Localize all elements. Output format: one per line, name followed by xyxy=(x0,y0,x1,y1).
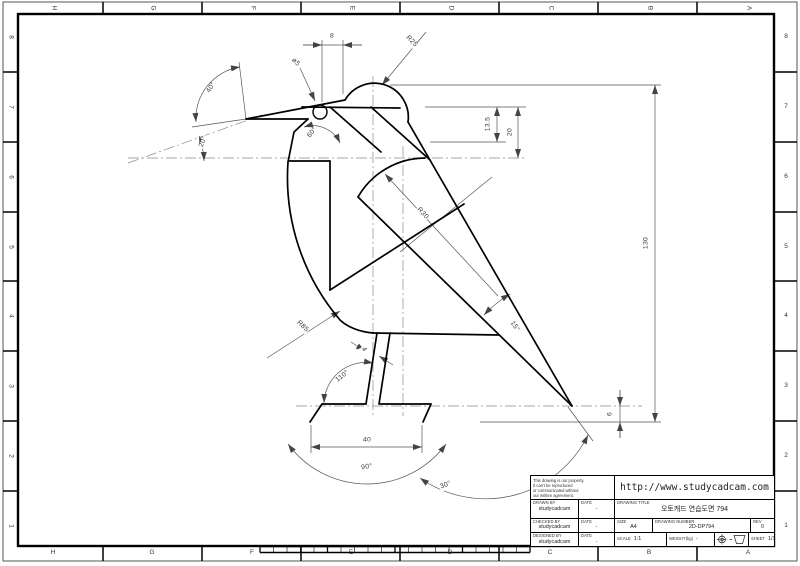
dim-head-offset: 13.5 xyxy=(486,116,493,132)
grid-label-top: H xyxy=(50,6,57,11)
grid-label-left: 6 xyxy=(7,175,14,179)
sheet-value: 1/1 xyxy=(768,536,774,542)
dim-overall-height: 130 xyxy=(644,236,651,250)
grid-label-right: 8 xyxy=(784,34,788,41)
cad-drawing-sheet: 8 R25 ø5 40° 20° 60° 13.5 20 130 R30 R85… xyxy=(0,0,800,566)
designed-by-value: studycadcam xyxy=(531,539,578,545)
grid-label-right: 3 xyxy=(784,383,788,390)
sheet-cell: SHEET 1/1 xyxy=(749,533,774,546)
drawn-date-value: - xyxy=(579,506,614,512)
checked-by-value: studycadcam xyxy=(531,524,578,530)
designed-by-cell: DESIGNED BY studycadcam xyxy=(531,533,579,546)
grid-label-bottom: E xyxy=(349,550,353,557)
grid-label-right: 6 xyxy=(784,174,788,181)
size-value: A4 xyxy=(615,524,652,530)
drawn-by-value: studycadcam xyxy=(531,506,578,512)
rev-cell: REV 0 xyxy=(751,519,774,534)
grid-label-right: 1 xyxy=(784,523,788,530)
scale-label: SCALE xyxy=(617,537,631,542)
grid-label-right: 5 xyxy=(784,244,788,251)
grid-label-bottom: A xyxy=(746,550,750,557)
drawn-date-cell: DATE - xyxy=(579,500,615,519)
grid-label-left: 2 xyxy=(7,454,14,458)
checked-date-cell: DATE - xyxy=(579,519,615,534)
grid-label-bottom: B xyxy=(647,550,651,557)
grid-label-right: 2 xyxy=(784,453,788,460)
grid-label-left: 4 xyxy=(7,314,14,318)
dim-head-depth: 20 xyxy=(508,127,515,137)
weight-label: WEIGHT(kg) xyxy=(669,537,693,542)
dim-base-width: 40 xyxy=(362,438,372,445)
drawing-number-value: 2D-DP794 xyxy=(653,524,750,530)
grid-label-right: 4 xyxy=(784,313,788,320)
dim-top-width: 8 xyxy=(329,34,335,41)
grid-label-top: F xyxy=(249,6,256,10)
title-block: This drawing is our property. It can't b… xyxy=(530,475,775,547)
grid-label-top: G xyxy=(149,5,156,10)
note-line: our written agreement. xyxy=(533,493,574,498)
checked-date-value: - xyxy=(579,524,614,530)
url-text: http://www.studycadcam.com xyxy=(615,476,774,499)
grid-label-top: D xyxy=(447,6,454,11)
grid-label-left: 7 xyxy=(7,105,14,109)
grid-label-top: C xyxy=(547,6,554,11)
grid-label-bottom: F xyxy=(250,550,254,557)
scale-value: 1:1 xyxy=(634,536,642,542)
bird-outline xyxy=(246,83,572,422)
grid-label-left: 1 xyxy=(7,524,14,528)
grid-label-left: 8 xyxy=(7,35,14,39)
drawn-by-cell: DRAWN BY studycadcam xyxy=(531,500,579,519)
third-angle-projection-icon xyxy=(715,533,749,546)
drawing-title-cell: DRAWING TITLE 오토캐드 연습도면 794 xyxy=(615,500,774,519)
grid-label-bottom: D xyxy=(448,550,453,557)
grid-label-left: 5 xyxy=(7,245,14,249)
designed-date-cell: DATE - xyxy=(579,533,615,546)
scale-bar xyxy=(260,546,530,553)
grid-label-right: 7 xyxy=(784,104,788,111)
dimension-lines xyxy=(192,32,661,499)
scale-cell: SCALE 1:1 xyxy=(615,533,667,546)
grid-label-bottom: G xyxy=(149,550,154,557)
designed-date-value: - xyxy=(579,539,614,545)
company-url: http://www.studycadcam.com xyxy=(615,476,774,500)
drawing-number-cell: DRAWING NUMBER 2D-DP794 xyxy=(653,519,751,534)
grid-label-bottom: H xyxy=(51,550,56,557)
grid-label-top: B xyxy=(646,6,653,10)
checked-by-cell: CHECKED BY studycadcam xyxy=(531,519,579,534)
grid-label-left: 3 xyxy=(7,384,14,388)
drawing-title-value: 오토캐드 연습도면 794 xyxy=(615,506,774,514)
weight-value: - xyxy=(696,536,698,542)
size-cell: SIZE A4 xyxy=(615,519,653,534)
grid-label-top: A xyxy=(745,6,752,10)
grid-label-top: E xyxy=(348,6,355,10)
property-note: This drawing is our property. It can't b… xyxy=(531,476,615,500)
weight-cell: WEIGHT(kg) - xyxy=(667,533,715,546)
rev-value: 0 xyxy=(751,524,774,530)
grid-label-bottom: C xyxy=(548,550,553,557)
dim-tail-drop: 6 xyxy=(608,411,615,417)
sheet-label: SHEET xyxy=(751,537,765,542)
projection-symbol-cell xyxy=(715,533,749,546)
